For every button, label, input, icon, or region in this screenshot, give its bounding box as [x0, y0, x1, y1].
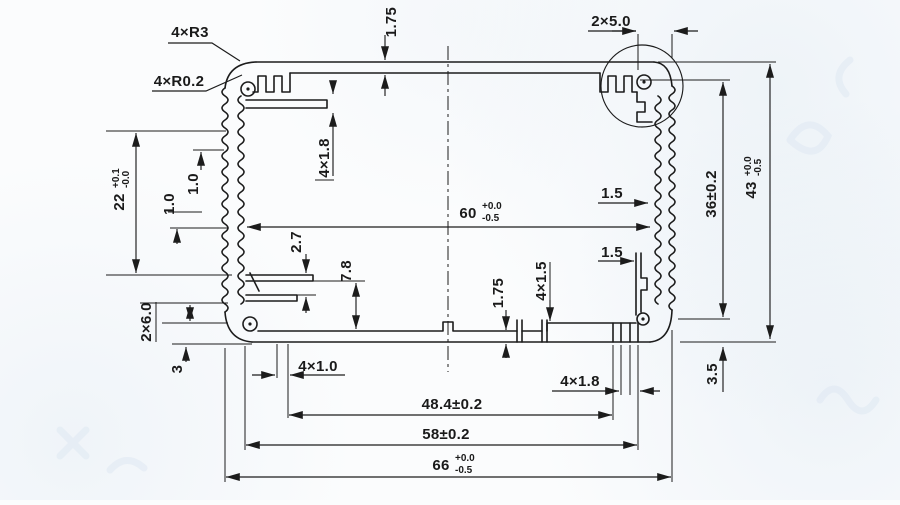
overall-width-tol-lower: -0.5: [455, 465, 473, 476]
boss-span-height-label: 36±0.2: [703, 170, 720, 218]
fin-pitch-lower-label: 1.0: [161, 193, 178, 215]
dim-wall-right-upper: 1.5: [598, 185, 648, 203]
pcb-slot-depth-label: 7.8: [338, 260, 355, 282]
overall-width-value: 66: [432, 457, 449, 474]
dim-boss-span-height: 36±0.2: [640, 80, 730, 319]
left-channel-height-value: 22: [111, 193, 128, 210]
dim-pcb-slot-depth: 7.8: [313, 260, 365, 329]
top-wall-label: 1.75: [383, 7, 400, 37]
inner-width-tol-upper: +0.0: [482, 201, 502, 212]
drawing-sheet: 4×R3 4×R0.2 1.75 2×5.0 22 +0.1 -0.0 1.0: [0, 0, 900, 500]
dim-slot-width-right: 4×1.8: [552, 345, 660, 395]
extrusion-profile-drawing: 4×R3 4×R0.2 1.75 2×5.0 22 +0.1 -0.0 1.0: [0, 0, 900, 500]
corner-notch-label: 2×5.0: [591, 13, 630, 30]
rib-slot-left-label: 4×1.8: [316, 138, 333, 177]
left-step-label: 2×6.0: [138, 302, 155, 341]
pcb-slot-gap-label: 2.7: [288, 231, 305, 253]
slot-width-right-label: 4×1.8: [560, 373, 599, 390]
screw-slot-center-label: 4×1.5: [533, 261, 550, 300]
inner-width-tol-lower: -0.5: [482, 213, 500, 224]
dim-corner-radius: 4×R3: [168, 24, 240, 61]
dim-bottom-wall: 1.75: [490, 278, 507, 358]
overall-height-tol-lower: -0.5: [753, 158, 764, 176]
bottom-left-wall-label: 3: [169, 365, 186, 374]
dim-wall-right-lower: 1.5: [598, 244, 634, 261]
corner-step-right-label: 3.5: [704, 363, 721, 385]
dim-corner-step-right: 3.5: [704, 347, 723, 392]
wall-right-lower-label: 1.5: [601, 244, 623, 261]
corner-radius-label: 4×R3: [171, 24, 208, 41]
inner-width-value: 60: [459, 205, 476, 222]
dim-rib-slot-left: 4×1.8: [315, 82, 334, 180]
dim-top-wall: 1.75: [383, 7, 400, 96]
dim-bottom-left-wall: 3: [169, 344, 252, 373]
dim-fin-pitch-upper: 1.0: [185, 150, 224, 195]
dim-fin-pitch-lower: 1.0: [161, 193, 228, 244]
hole-span-width-label: 48.4±0.2: [422, 396, 483, 413]
fillet-radius-label: 4×R0.2: [154, 73, 205, 90]
bottom-wall-label: 1.75: [490, 278, 507, 308]
dim-slot-width-left: 4×1.0: [252, 344, 345, 418]
slot-width-left-label: 4×1.0: [298, 358, 337, 375]
wall-right-upper-label: 1.5: [601, 185, 623, 202]
dim-left-step: 2×6.0: [138, 302, 228, 342]
overall-height-value: 43: [743, 181, 760, 198]
detail-circle: [601, 45, 683, 127]
left-channel-height-tol-lower: -0.0: [121, 170, 132, 188]
fin-pitch-upper-label: 1.0: [185, 173, 202, 195]
overall-width-tol-upper: +0.0: [455, 453, 475, 464]
dim-screw-slot-center: 4×1.5: [533, 261, 550, 321]
profile-interior: [241, 73, 652, 342]
inner-span-width-label: 58±0.2: [422, 426, 470, 443]
